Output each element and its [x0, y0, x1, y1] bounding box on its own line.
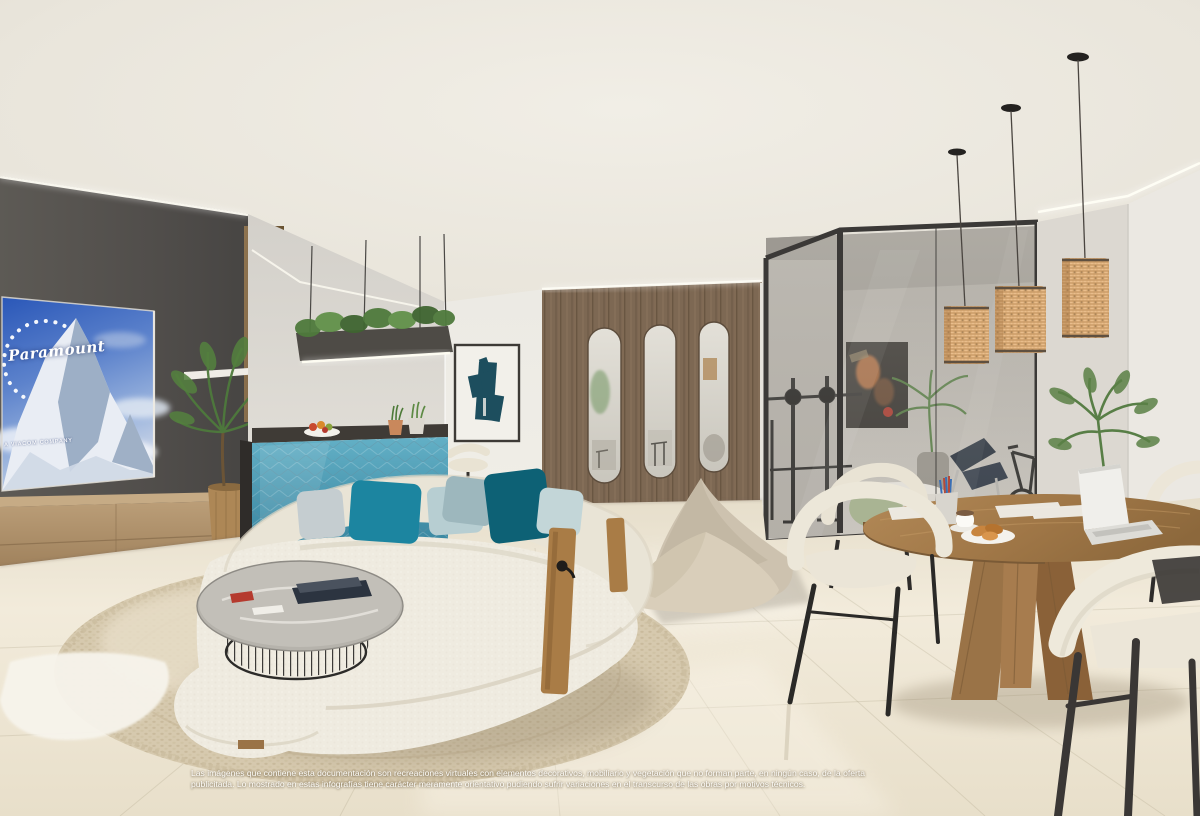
disclaimer-line-1: Las imágenes que contiene esta documenta… [191, 768, 911, 779]
scene-art [0, 0, 1200, 816]
disclaimer-line-2: publicitada. Lo mostrado en estas infogr… [191, 779, 911, 790]
right-wall [1037, 170, 1200, 514]
interior-render: Paramount A VIACOM COMPANY Las imágenes … [0, 0, 1200, 816]
legal-disclaimer: Las imágenes que contiene esta documenta… [191, 768, 911, 789]
abstract-artwork [455, 345, 519, 441]
arched-mirror-2 [644, 325, 676, 478]
tv-screen [0, 297, 170, 491]
ceiling-mount-3 [948, 149, 966, 156]
slatted-partition [542, 281, 762, 506]
ceiling-mount-2 [1001, 104, 1021, 112]
rattan-pendant-2 [995, 286, 1046, 353]
rattan-pendant-3 [944, 306, 989, 364]
rattan-pendant-1 [1062, 258, 1109, 338]
arched-mirror-3 [699, 322, 729, 472]
sofa-foot [238, 740, 264, 749]
arched-mirror-1 [588, 328, 621, 483]
